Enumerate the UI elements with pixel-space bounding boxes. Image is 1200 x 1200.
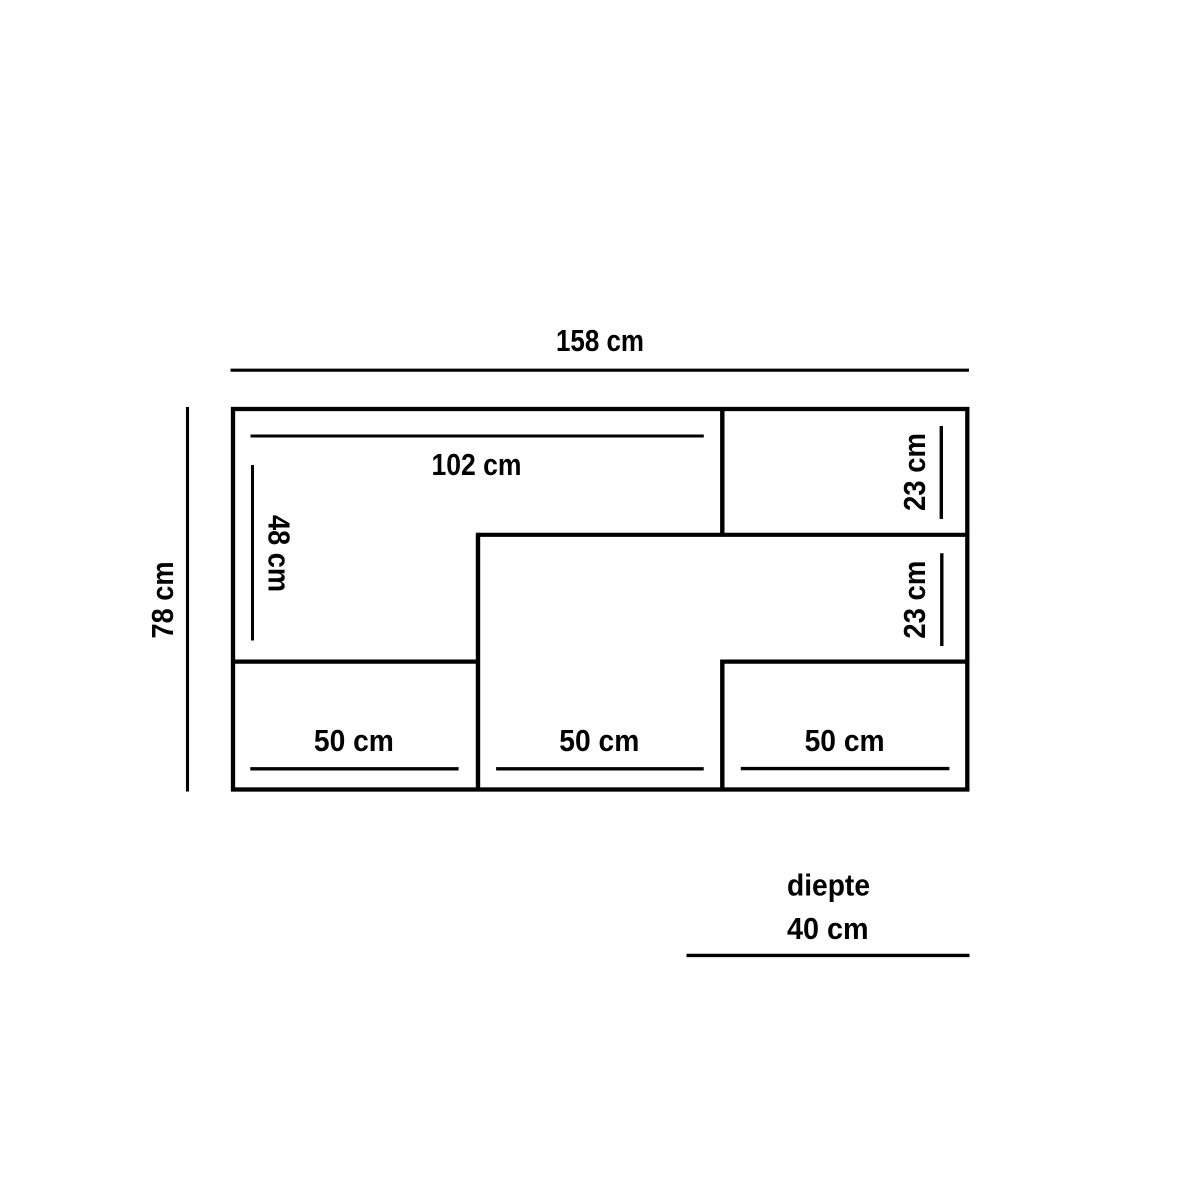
svg-text:23 cm: 23 cm [897,561,932,639]
svg-text:50 cm: 50 cm [559,723,639,758]
svg-text:50 cm: 50 cm [314,723,394,758]
svg-text:102 cm: 102 cm [432,447,522,482]
svg-text:48 cm: 48 cm [262,515,297,592]
svg-text:diepte: diepte [787,868,870,903]
svg-text:78 cm: 78 cm [145,562,180,639]
svg-text:40 cm: 40 cm [787,911,869,946]
svg-text:158 cm: 158 cm [556,323,644,358]
svg-text:23 cm: 23 cm [897,433,932,511]
svg-text:50 cm: 50 cm [805,723,885,758]
